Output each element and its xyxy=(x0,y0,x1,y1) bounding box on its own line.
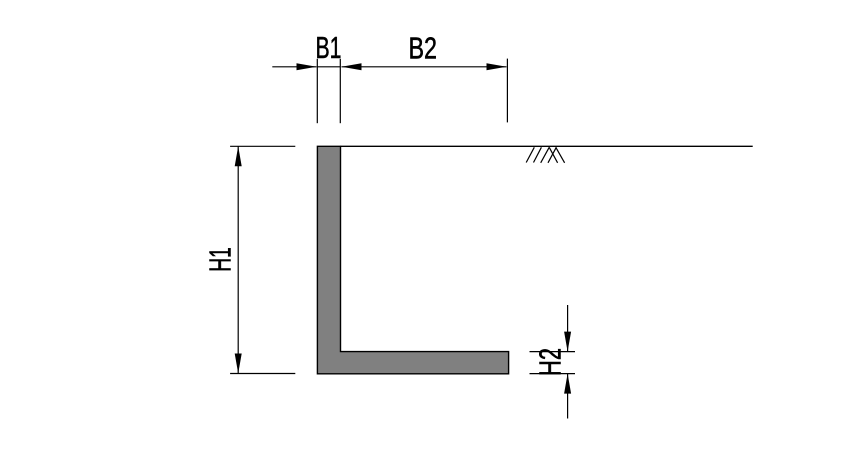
svg-text:B2: B2 xyxy=(408,30,437,65)
svg-text:H2: H2 xyxy=(533,348,568,376)
svg-text:H1: H1 xyxy=(202,247,237,272)
svg-text:B1: B1 xyxy=(316,30,342,65)
